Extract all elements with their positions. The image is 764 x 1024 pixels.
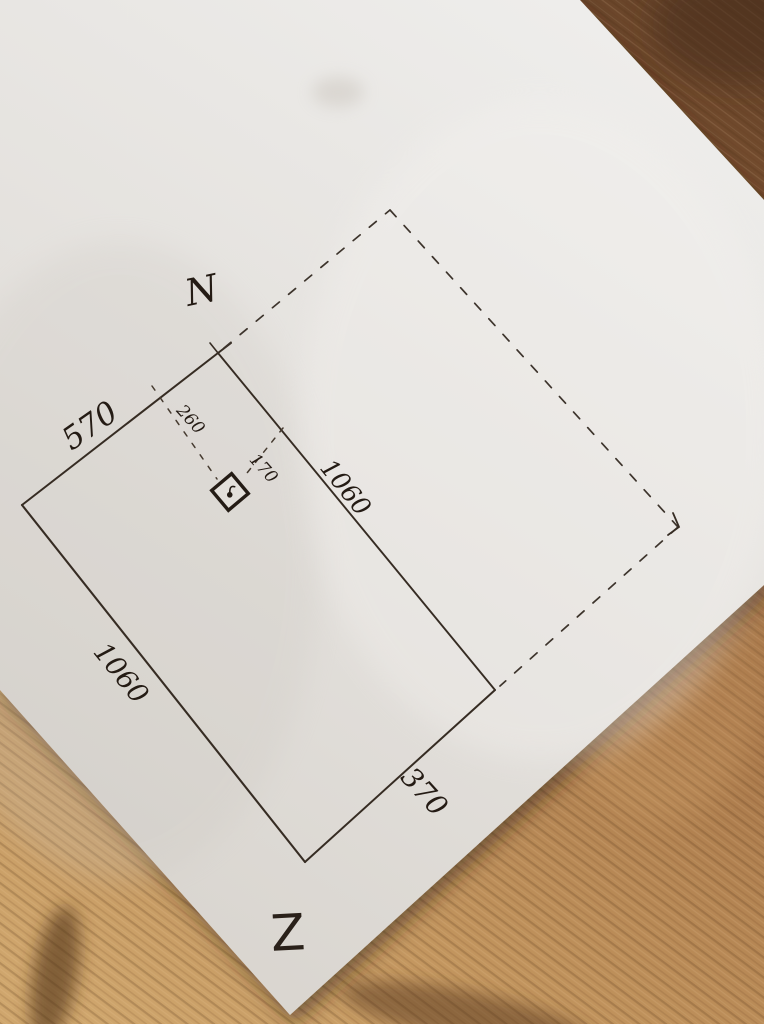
photo-of-sketch: N 570 260 170 1060 1060 370 Z (0, 0, 764, 1024)
corner-letter-z: Z (269, 903, 306, 963)
sketch-photo-canvas: N 570 260 170 1060 1060 370 Z (0, 0, 764, 1024)
paper-highlight (300, 100, 764, 760)
paper-smudge (312, 77, 364, 107)
